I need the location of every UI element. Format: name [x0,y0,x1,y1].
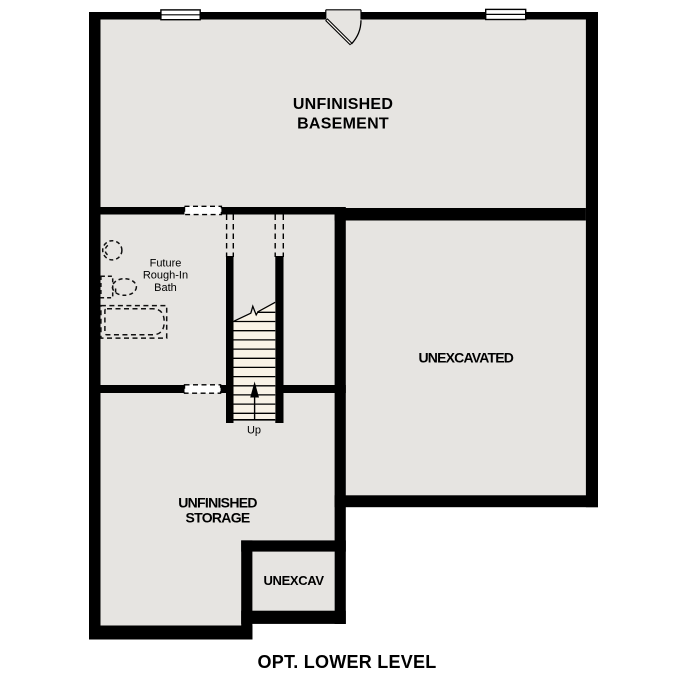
svg-text:Future: Future [150,257,182,269]
svg-text:UNEXCAVATED: UNEXCAVATED [418,350,513,366]
svg-text:UNFINISHED: UNFINISHED [293,96,393,113]
svg-text:BASEMENT: BASEMENT [297,116,389,133]
svg-text:Bath: Bath [154,282,177,294]
svg-text:STORAGE: STORAGE [185,510,249,526]
svg-text:OPT. LOWER LEVEL: OPT. LOWER LEVEL [257,652,436,672]
svg-text:Up: Up [247,425,261,437]
svg-text:UNFINISHED: UNFINISHED [178,495,257,511]
svg-text:UNEXCAV: UNEXCAV [264,573,325,588]
svg-text:Rough-In: Rough-In [143,270,188,282]
